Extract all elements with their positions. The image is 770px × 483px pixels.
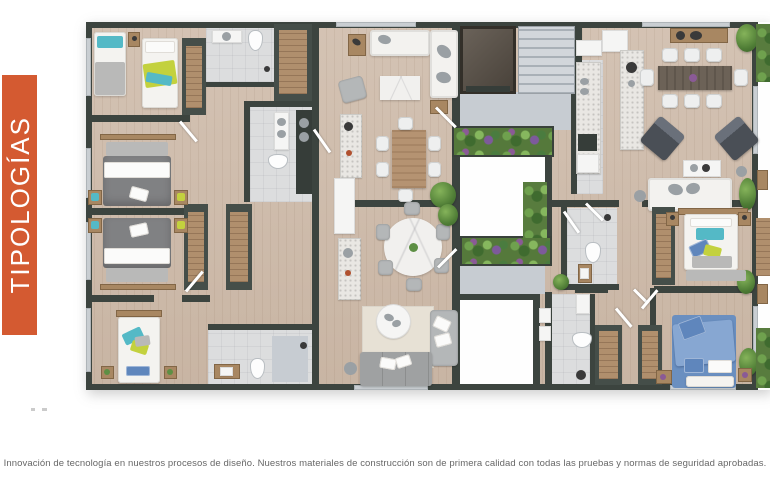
faucet: [628, 80, 635, 87]
balcony-plants: [756, 24, 770, 82]
kettle: [346, 150, 352, 156]
wardrobe-inner: [186, 46, 202, 108]
plant-pot: [660, 374, 666, 380]
elevator-door-sill: [466, 86, 510, 92]
balcony-chair: [757, 170, 768, 190]
centerpiece: [409, 243, 418, 252]
courtyard-lower: [459, 300, 533, 388]
tipologias-banner: TIPOLOGÍAS: [2, 75, 37, 335]
dining-chair: [662, 48, 678, 62]
caption-text: Innovación de tecnología en nuestros pro…: [0, 458, 770, 469]
balcony-plants: [756, 328, 770, 388]
bedA-blanket: [692, 256, 732, 268]
window: [642, 22, 730, 27]
window: [86, 308, 91, 372]
counter-sink: [580, 88, 589, 95]
plant: [736, 24, 758, 52]
bedB-pillow: [708, 360, 732, 373]
wall-bedrooms-right-a: [575, 286, 608, 293]
wall-twin-room: [86, 115, 190, 122]
balcony-deck: [756, 218, 770, 276]
walkway-mid: [458, 262, 545, 294]
plant: [438, 204, 458, 226]
dining-chair: [684, 48, 700, 62]
counter-sink: [580, 78, 589, 85]
sideboard-decor: [676, 31, 685, 40]
wall-walkway-bottom: [452, 294, 540, 300]
bath4-sink: [580, 268, 589, 279]
wall-master-b: [182, 295, 210, 302]
upper-cabinets: [576, 40, 602, 56]
plant: [553, 274, 569, 290]
flower-vase: [689, 74, 697, 82]
wall-master-a: [86, 295, 154, 302]
round-chair: [404, 202, 420, 215]
side-table: [344, 362, 357, 375]
masterA-white-band: [104, 162, 170, 178]
masterB-white-band: [104, 248, 170, 264]
storage-cube: [602, 30, 628, 52]
round-chair: [378, 260, 393, 275]
dining-table-1: [392, 130, 426, 188]
coffee-table-marble: [380, 76, 420, 100]
dining-chair: [734, 69, 748, 86]
wall-bath2-top: [244, 101, 312, 107]
appliance: [577, 154, 599, 173]
dining-chair: [706, 94, 722, 108]
sofa-L-right: [430, 30, 458, 98]
bedA-bench: [686, 270, 746, 281]
bedB-bench: [686, 376, 734, 387]
stove: [578, 134, 597, 151]
planter-upper: [452, 126, 554, 157]
masterA-art: [177, 193, 185, 201]
side-table: [634, 190, 646, 202]
wall-bath1-bottom: [206, 82, 276, 87]
wall-master-divider: [86, 208, 190, 215]
wall-bath2-left: [244, 107, 250, 202]
bath5-drain: [576, 370, 586, 380]
masterB-art: [91, 221, 99, 229]
island-sink: [343, 248, 353, 258]
twin-bed-2-pillow: [145, 41, 175, 53]
bedB-plaid-pillow: [684, 358, 704, 373]
closet-inner: [230, 212, 248, 282]
dining-chair: [428, 162, 441, 177]
lamp: [132, 36, 137, 41]
lamp: [742, 215, 747, 220]
twin-bed-1-blanket: [95, 62, 125, 95]
floor-plan: [86, 22, 770, 390]
burner: [299, 132, 309, 142]
wall-left-apt: [312, 22, 319, 390]
dining-chair: [706, 48, 722, 62]
kettle: [345, 270, 351, 276]
masterB-art: [177, 221, 185, 229]
masterA-pillows: [106, 142, 168, 156]
courtyard-plants-right: [523, 182, 547, 238]
core-landing: [458, 92, 575, 130]
sofa-L-top: [370, 30, 430, 56]
bath3-sink: [220, 367, 233, 376]
sideboard-decor: [690, 31, 702, 40]
dining-chair: [398, 189, 413, 202]
tall-cabinet: [334, 178, 355, 234]
bedA-pillow: [696, 228, 724, 240]
banner-title: TIPOLOGÍAS: [7, 116, 33, 294]
dining-chair: [428, 136, 441, 151]
planter-mid: [460, 236, 552, 266]
artifact-dots: [31, 408, 51, 412]
round-chair: [436, 224, 450, 240]
dining-chair: [662, 94, 678, 108]
bath3-drain: [300, 342, 307, 349]
bedA-pillow: [690, 218, 732, 227]
closet-inner: [279, 30, 307, 94]
twin-bed-1-pillow: [97, 36, 123, 48]
bath4-drain: [604, 214, 611, 221]
lamp: [670, 215, 675, 220]
bath2-sink: [277, 118, 286, 126]
closet-inner: [599, 331, 618, 379]
masterA-headboard: [100, 134, 176, 140]
plant-pot: [104, 369, 110, 375]
island-sink: [626, 62, 637, 73]
bath2-sink: [277, 130, 286, 138]
brochure-page: TIPOLOGÍAS Innovación de tecnología en n…: [0, 0, 770, 483]
dining-chair: [376, 136, 389, 151]
stairs: [518, 26, 575, 94]
masterB-pillows: [106, 268, 168, 282]
balcony-chair: [757, 284, 768, 304]
single-bed-throw: [134, 335, 150, 347]
round-chair: [376, 224, 390, 240]
laundry-machine: [539, 326, 551, 341]
plant: [739, 178, 756, 210]
bath1-drain: [264, 66, 270, 72]
table-decor: [702, 164, 710, 172]
bath1-sink: [222, 32, 231, 41]
wall-courtyard-right-b: [545, 292, 552, 390]
masterA-art: [91, 193, 99, 201]
dining-chair: [684, 94, 700, 108]
round-chair: [406, 278, 422, 291]
dining-chair: [640, 69, 654, 86]
window: [336, 22, 416, 27]
side-table: [736, 166, 747, 177]
burner: [299, 118, 309, 128]
table-decor: [690, 164, 698, 172]
elevator-shaft: [460, 26, 516, 94]
dining-chair: [398, 117, 413, 130]
single-bed-headboard: [116, 310, 162, 317]
laundry-machine: [539, 308, 551, 323]
bath5-vanity: [576, 294, 590, 314]
dining-chair: [376, 162, 389, 177]
wall-right-apt-top-a: [547, 200, 619, 207]
plant-pot: [742, 372, 748, 378]
window: [86, 38, 91, 96]
masterB-headboard: [100, 284, 176, 290]
plant-pot: [167, 369, 173, 375]
wall-bath3-top: [208, 324, 312, 330]
single-bed-cushion: [126, 366, 150, 376]
island-sink: [344, 122, 353, 131]
